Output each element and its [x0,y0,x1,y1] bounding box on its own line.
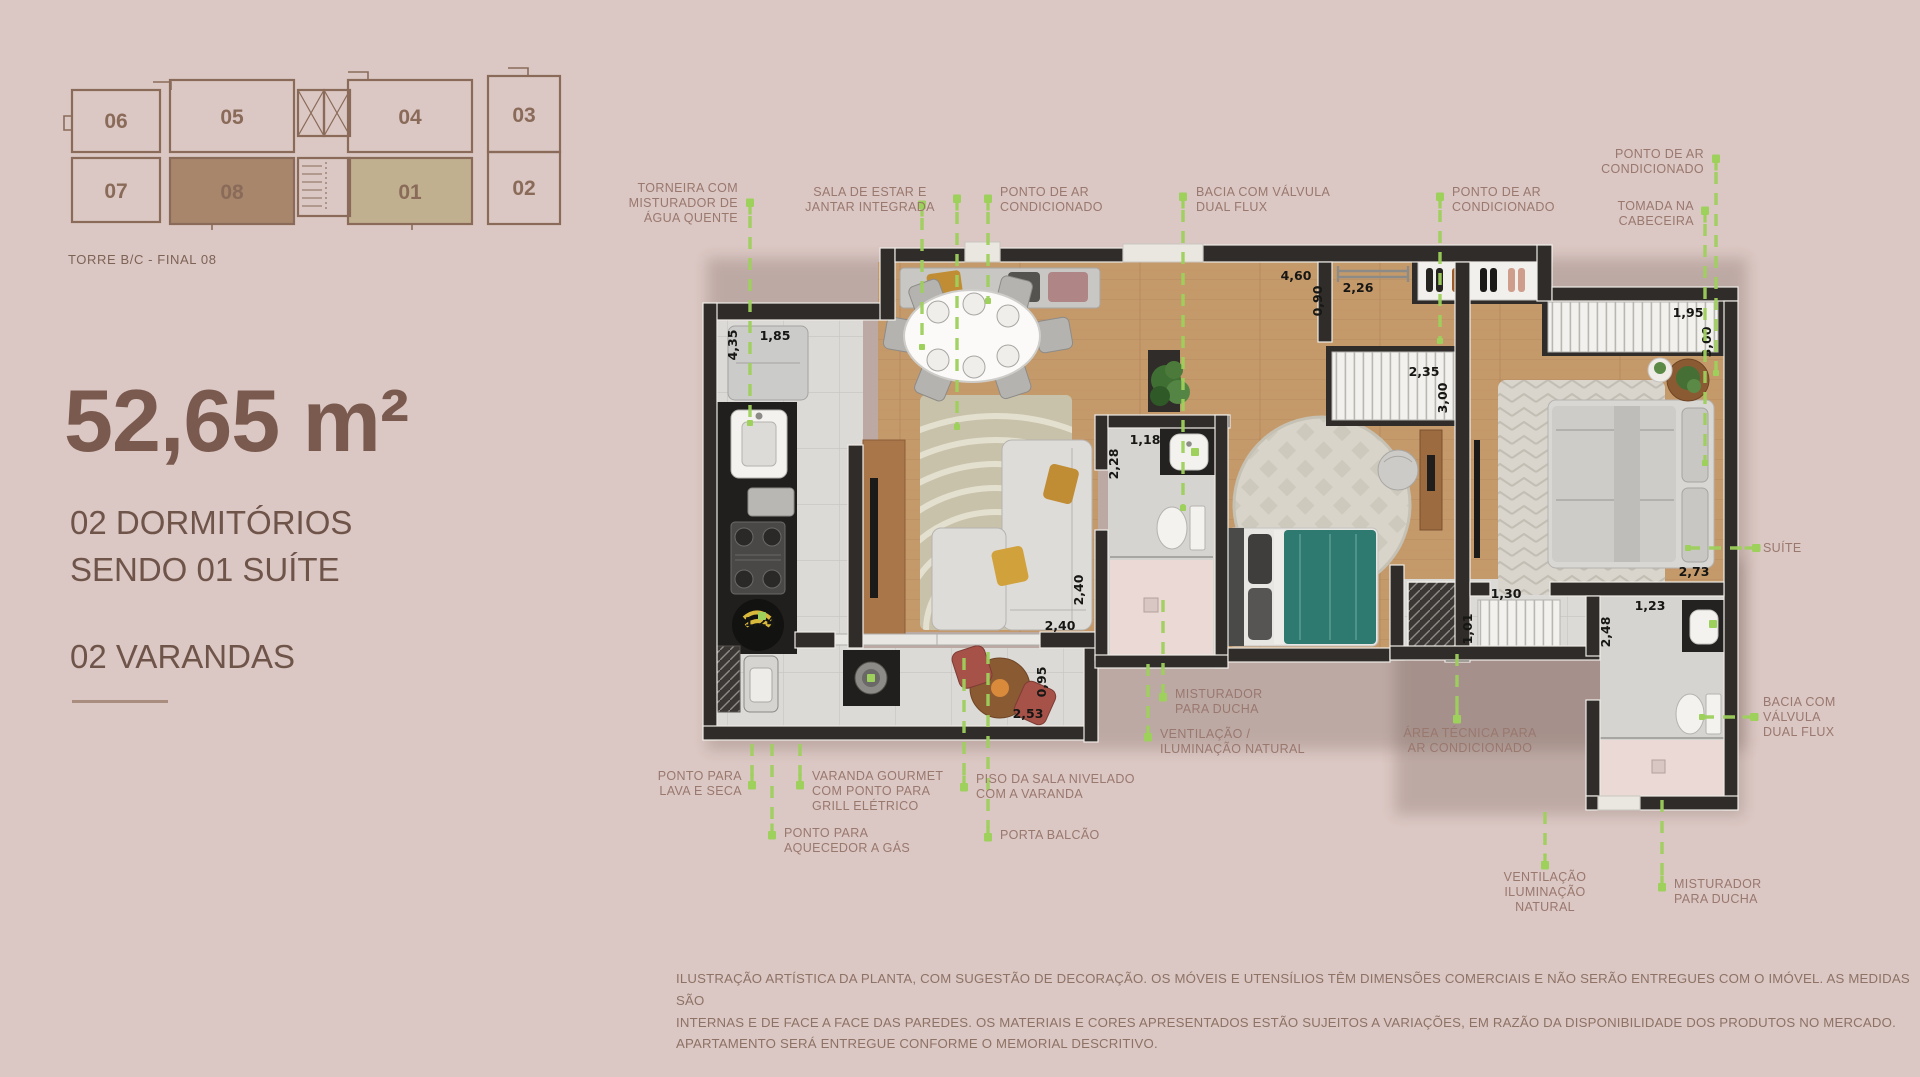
unit-02: 02 [512,177,535,200]
unit-04: 04 [398,106,422,129]
dim-bath-width: 1,18 [1130,432,1161,447]
disclaimer-line2: INTERNAS E DE FACE A FACE DAS PAREDES. O… [676,1012,1916,1034]
callout-text: ÁGUA QUENTE [644,210,738,225]
unit-07: 07 [104,180,127,203]
bath-drain [1144,598,1158,612]
callout-text: PISO DA SALA NIVELADO [976,772,1135,786]
dim-closet: 1,30 [1491,586,1522,601]
callout-text: BACIA COM VÁLVULA [1196,184,1331,199]
unit-08-highlight: 08 [220,181,244,204]
window-sill-2 [1123,244,1203,262]
dim-suite-wardrobe: 1,95 [1673,305,1704,320]
dim-rail: 2,26 [1343,280,1374,295]
disclaimer: ILUSTRAÇÃO ARTÍSTICA DA PLANTA, COM SUGE… [676,968,1916,1055]
callout-text: VÁLVULA [1763,709,1821,724]
closet-shelf [1478,600,1560,648]
callout-text: GRILL ELÉTRICO [812,798,919,813]
dim-suitebath-width: 1,23 [1635,598,1666,613]
bath-toilet [1157,506,1205,550]
callout-text: ÁREA TÉCNICA PARA [1403,725,1537,740]
unit-06: 06 [104,110,127,133]
dim-living-width: 2,40 [1045,618,1076,633]
callout-text: DUAL FLUX [1196,200,1268,214]
callout-ventilacao-dir: VENTILAÇÃO ILUMINAÇÃO NATURAL [1504,870,1587,914]
callout-text: ILUMINAÇÃO NATURAL [1160,742,1305,756]
dim-suitebath-depth: 2,48 [1598,617,1613,648]
page: 06 05 04 03 07 08 01 02 TORRE B/C - FINA… [0,0,1920,1077]
callout-text: VENTILAÇÃO / [1160,727,1251,741]
unit-05: 05 [220,106,244,129]
suite-tv [1474,440,1480,558]
tower-label: TORRE B/C - FINAL 08 [68,252,217,267]
bedrooms-line1: 02 DORMITÓRIOS [70,500,352,547]
disclaimer-line3: APARTAMENTO SERÁ ENTREGUE CONFORME O MEM… [676,1033,1916,1055]
callout-text: PARA DUCHA [1175,702,1259,716]
callout-sala: SALA DE ESTAR E JANTAR INTEGRADA [805,185,935,214]
callout-text: MISTURADOR DE [629,196,738,210]
callout-text: TORNEIRA COM [637,181,738,195]
callout-text: LAVA E SECA [659,784,742,798]
callout-text: PONTO PARA [658,769,743,783]
dim-varanda-depth: 0,95 [1034,667,1049,698]
callout-text: CONDICIONADO [1000,200,1103,214]
dorm2-bed [1228,528,1378,646]
callout-text: BACIA COM [1763,695,1836,709]
tv [870,478,878,598]
unit-03: 03 [512,104,535,127]
callout-misturador-centro: MISTURADOR PARA DUCHA [1175,687,1263,716]
suite-bed [1548,400,1714,568]
callout-text: VENTILAÇÃO [1504,870,1587,884]
callout-text: MISTURADOR [1175,687,1263,701]
bedrooms-text: 02 DORMITÓRIOS SENDO 01 SUÍTE [70,500,352,594]
callout-text: TOMADA NA [1617,199,1694,213]
callout-torneira: TORNEIRA COM MISTURADOR DE ÁGUA QUENTE [629,181,738,225]
callout-text: SALA DE ESTAR E [813,185,926,199]
bath-sink [1170,434,1208,470]
bench-pillow-rose [1048,272,1088,302]
area-tecnica [1408,582,1462,650]
divider-rule [72,700,168,703]
callout-lava-seca: PONTO PARA LAVA E SECA [658,769,743,798]
callout-text: DUAL FLUX [1763,725,1835,739]
toaster [748,488,794,516]
disclaimer-line1: ILUSTRAÇÃO ARTÍSTICA DA PLANTA, COM SUGE… [676,968,1916,1012]
dim-suite-width: 2,73 [1679,564,1710,579]
key-plan: 06 05 04 03 07 08 01 02 [58,62,568,252]
suitebath-drain [1652,760,1665,773]
callout-varanda-gourmet: VARANDA GOURMET COM PONTO PARA GRILL ELÉ… [812,769,943,813]
callout-misturador-dir: MISTURADOR PARA DUCHA [1674,877,1762,906]
dim-varanda-width: 2,53 [1013,706,1044,721]
callout-text: PONTO DE AR [1000,185,1089,199]
callout-text: VARANDA GOURMET [812,769,943,783]
balconies-text: 02 VARANDAS [70,638,295,676]
callout-text: CABECEIRA [1619,214,1695,228]
floor-plan: 4,35 1,85 1,24 4,60 0,90 2,26 2,35 3,00 … [560,100,1920,960]
callout-bacia-right: BACIA COM VÁLVULA DUAL FLUX [1763,695,1836,739]
callout-piso-sala: PISO DA SALA NIVELADO COM A VARANDA [976,772,1135,801]
callout-text: AQUECEDOR A GÁS [784,840,910,855]
callout-ponto-ar-1: PONTO DE AR CONDICIONADO [1000,185,1103,214]
callout-aquecedor: PONTO PARA AQUECEDOR A GÁS [784,826,910,855]
callout-text: ILUMINAÇÃO [1504,885,1585,899]
callout-tomada: TOMADA NA CABECEIRA [1617,199,1694,228]
callout-text: NATURAL [1515,900,1575,914]
callout-text: PONTO DE AR [1615,147,1704,161]
dim-wardrobe2: 2,35 [1409,364,1440,379]
tv-bench [863,440,905,638]
callout-ponto-ar-2: PONTO DE AR CONDICIONADO [1452,185,1555,214]
dim-dorm2-depth: 3,00 [1435,382,1450,413]
callout-text: COM A VARANDA [976,787,1083,801]
unit-01: 01 [398,181,422,204]
sofa-chaise [932,528,1006,630]
callout-text: COM PONTO PARA [812,784,931,798]
callout-ponto-ar-3: PONTO DE AR CONDICIONADO [1601,147,1704,176]
callout-text: MISTURADOR [1674,877,1762,891]
dim-closet-depth: 1,01 [1460,614,1475,645]
window-sill-1 [965,242,1000,262]
key-plan-outline [64,68,560,230]
suitebath-window [1598,796,1640,810]
callout-text: JANTAR INTEGRADA [805,200,935,214]
callout-text: CONDICIONADO [1452,200,1555,214]
callout-bacia-top: BACIA COM VÁLVULA DUAL FLUX [1196,184,1331,214]
dorm2-monitor [1427,455,1435,491]
callout-text: PARA DUCHA [1674,892,1758,906]
callout-text: PONTO DE AR [1452,185,1541,199]
dim-kitchen-width: 1,85 [760,328,791,343]
callout-text: AR CONDICIONADO [1408,741,1533,755]
dim-bath-depth: 2,28 [1106,449,1121,480]
callout-text: PONTO PARA [784,826,869,840]
suitebath-toilet [1676,694,1721,734]
callout-text: CONDICIONADO [1601,162,1704,176]
bedrooms-line2: SENDO 01 SUÍTE [70,547,352,594]
callout-suite: SUÍTE [1763,540,1802,555]
dim-kitchen-depth: 4,35 [725,330,740,361]
apartment-area: 52,65 m² [64,370,408,472]
dim-living-depth: 2,40 [1071,574,1086,605]
dim-hall-width: 0,90 [1310,285,1325,316]
dim-hall-length: 4,60 [1281,268,1312,283]
callout-porta-balcao: PORTA BALCÃO [1000,828,1100,842]
